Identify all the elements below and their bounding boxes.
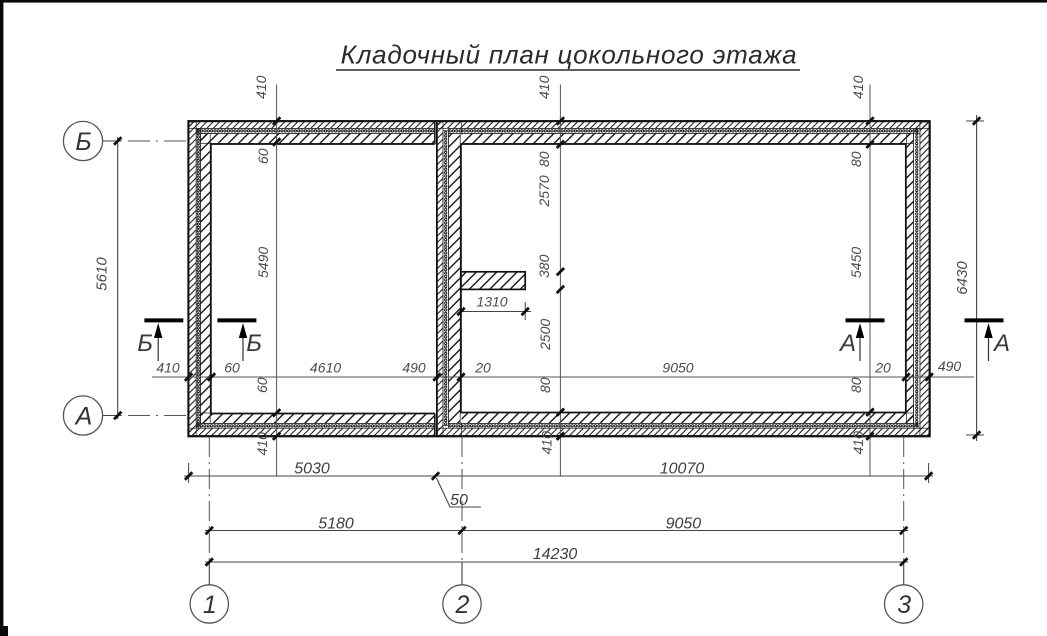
- svg-text:20: 20: [874, 360, 891, 376]
- svg-text:80: 80: [848, 151, 864, 167]
- svg-text:60: 60: [224, 360, 240, 376]
- svg-text:5610: 5610: [94, 257, 111, 291]
- svg-text:Б: Б: [137, 330, 153, 357]
- svg-text:4610: 4610: [310, 360, 341, 376]
- svg-text:2570: 2570: [536, 175, 552, 207]
- svg-text:Б: Б: [246, 330, 262, 357]
- svg-text:1310: 1310: [476, 294, 507, 310]
- svg-text:5490: 5490: [255, 247, 271, 278]
- svg-text:410: 410: [850, 75, 866, 99]
- svg-text:410: 410: [254, 432, 270, 456]
- svg-text:6430: 6430: [954, 261, 971, 295]
- svg-text:2500: 2500: [537, 319, 553, 351]
- svg-text:50: 50: [450, 492, 468, 509]
- svg-text:2: 2: [455, 591, 470, 619]
- svg-text:410: 410: [253, 75, 269, 99]
- svg-text:80: 80: [848, 377, 864, 393]
- svg-text:20: 20: [474, 360, 491, 376]
- svg-text:60: 60: [254, 377, 270, 393]
- svg-text:3: 3: [897, 591, 911, 619]
- svg-text:5450: 5450: [848, 247, 864, 278]
- svg-text:410: 410: [536, 75, 552, 99]
- svg-text:410: 410: [156, 360, 180, 376]
- svg-text:5030: 5030: [294, 461, 330, 478]
- svg-text:Б: Б: [75, 128, 91, 156]
- svg-text:9050: 9050: [666, 516, 702, 533]
- svg-text:10070: 10070: [660, 461, 705, 478]
- svg-text:А: А: [838, 330, 856, 357]
- svg-text:5180: 5180: [318, 516, 354, 533]
- svg-text:80: 80: [537, 377, 553, 393]
- svg-text:Кладочный план цокольного этаж: Кладочный план цокольного этажа: [341, 40, 798, 70]
- svg-text:410: 410: [850, 431, 866, 455]
- svg-text:80: 80: [536, 151, 552, 167]
- svg-text:9050: 9050: [662, 360, 693, 376]
- svg-text:490: 490: [402, 360, 426, 376]
- svg-text:14230: 14230: [533, 546, 578, 563]
- svg-text:380: 380: [536, 254, 552, 278]
- svg-text:60: 60: [255, 148, 271, 164]
- svg-text:490: 490: [938, 358, 962, 374]
- svg-text:А: А: [74, 403, 93, 431]
- svg-text:410: 410: [539, 431, 555, 455]
- svg-text:1: 1: [203, 591, 217, 619]
- svg-text:А: А: [992, 330, 1010, 357]
